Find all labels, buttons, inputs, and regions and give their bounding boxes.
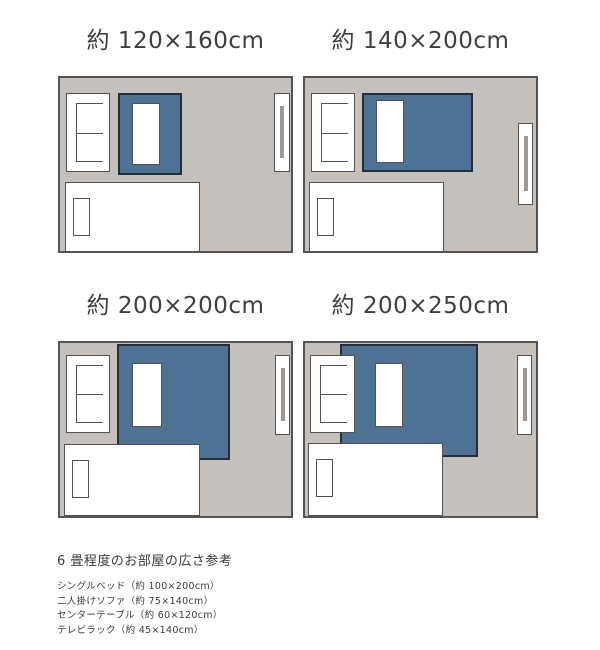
center-table: [376, 100, 404, 163]
diagram-title: 約 120×160cm: [58, 26, 293, 56]
tv-rack: [275, 355, 290, 435]
single-bed: [65, 182, 200, 252]
bed-pillow: [73, 198, 90, 236]
canvas: { "colors": { "page_bg": "#ffffff", "roo…: [0, 0, 600, 650]
center-table: [132, 363, 162, 427]
bed-pillow: [317, 198, 334, 236]
diagram-title: 約 140×200cm: [303, 26, 538, 56]
tv-rack: [517, 355, 532, 435]
legend-item-tv-rack: テレビラック（約 45×140cm）: [57, 624, 232, 639]
footer-legend: 6 畳程度のお部屋の広さ参考 シングルベッド（約 100×200cm） 二人掛け…: [57, 553, 232, 638]
two-seat-sofa: [310, 355, 355, 433]
sofa-seat: [321, 103, 348, 162]
sofa-seat: [76, 365, 103, 423]
diagram-title: 約 200×250cm: [303, 291, 538, 321]
single-bed: [308, 443, 443, 516]
sofa-seat: [320, 365, 347, 423]
bed-pillow: [316, 459, 333, 497]
room-floor: [58, 76, 293, 253]
center-table: [375, 363, 403, 427]
room-floor: [303, 76, 538, 253]
rug-200x250: [340, 344, 478, 457]
bed-pillow: [72, 460, 89, 498]
legend-item-sofa: 二人掛けソファ（約 75×140cm）: [57, 595, 232, 610]
center-table: [132, 103, 160, 165]
tv-rack: [274, 93, 290, 172]
room-floor: [58, 341, 293, 518]
two-seat-sofa: [66, 355, 110, 433]
diagram-title: 約 200×200cm: [58, 291, 293, 321]
sofa-seat: [76, 103, 103, 162]
legend-item-single-bed: シングルベッド（約 100×200cm）: [57, 580, 232, 595]
two-seat-sofa: [311, 93, 355, 172]
tv-rack: [518, 123, 533, 205]
footer-heading: 6 畳程度のお部屋の広さ参考: [57, 553, 232, 571]
two-seat-sofa: [66, 93, 110, 172]
single-bed: [309, 182, 444, 252]
room-floor: [303, 341, 538, 518]
legend-item-center-table: センターテーブル（約 60×120cm）: [57, 609, 232, 624]
single-bed: [64, 444, 200, 516]
